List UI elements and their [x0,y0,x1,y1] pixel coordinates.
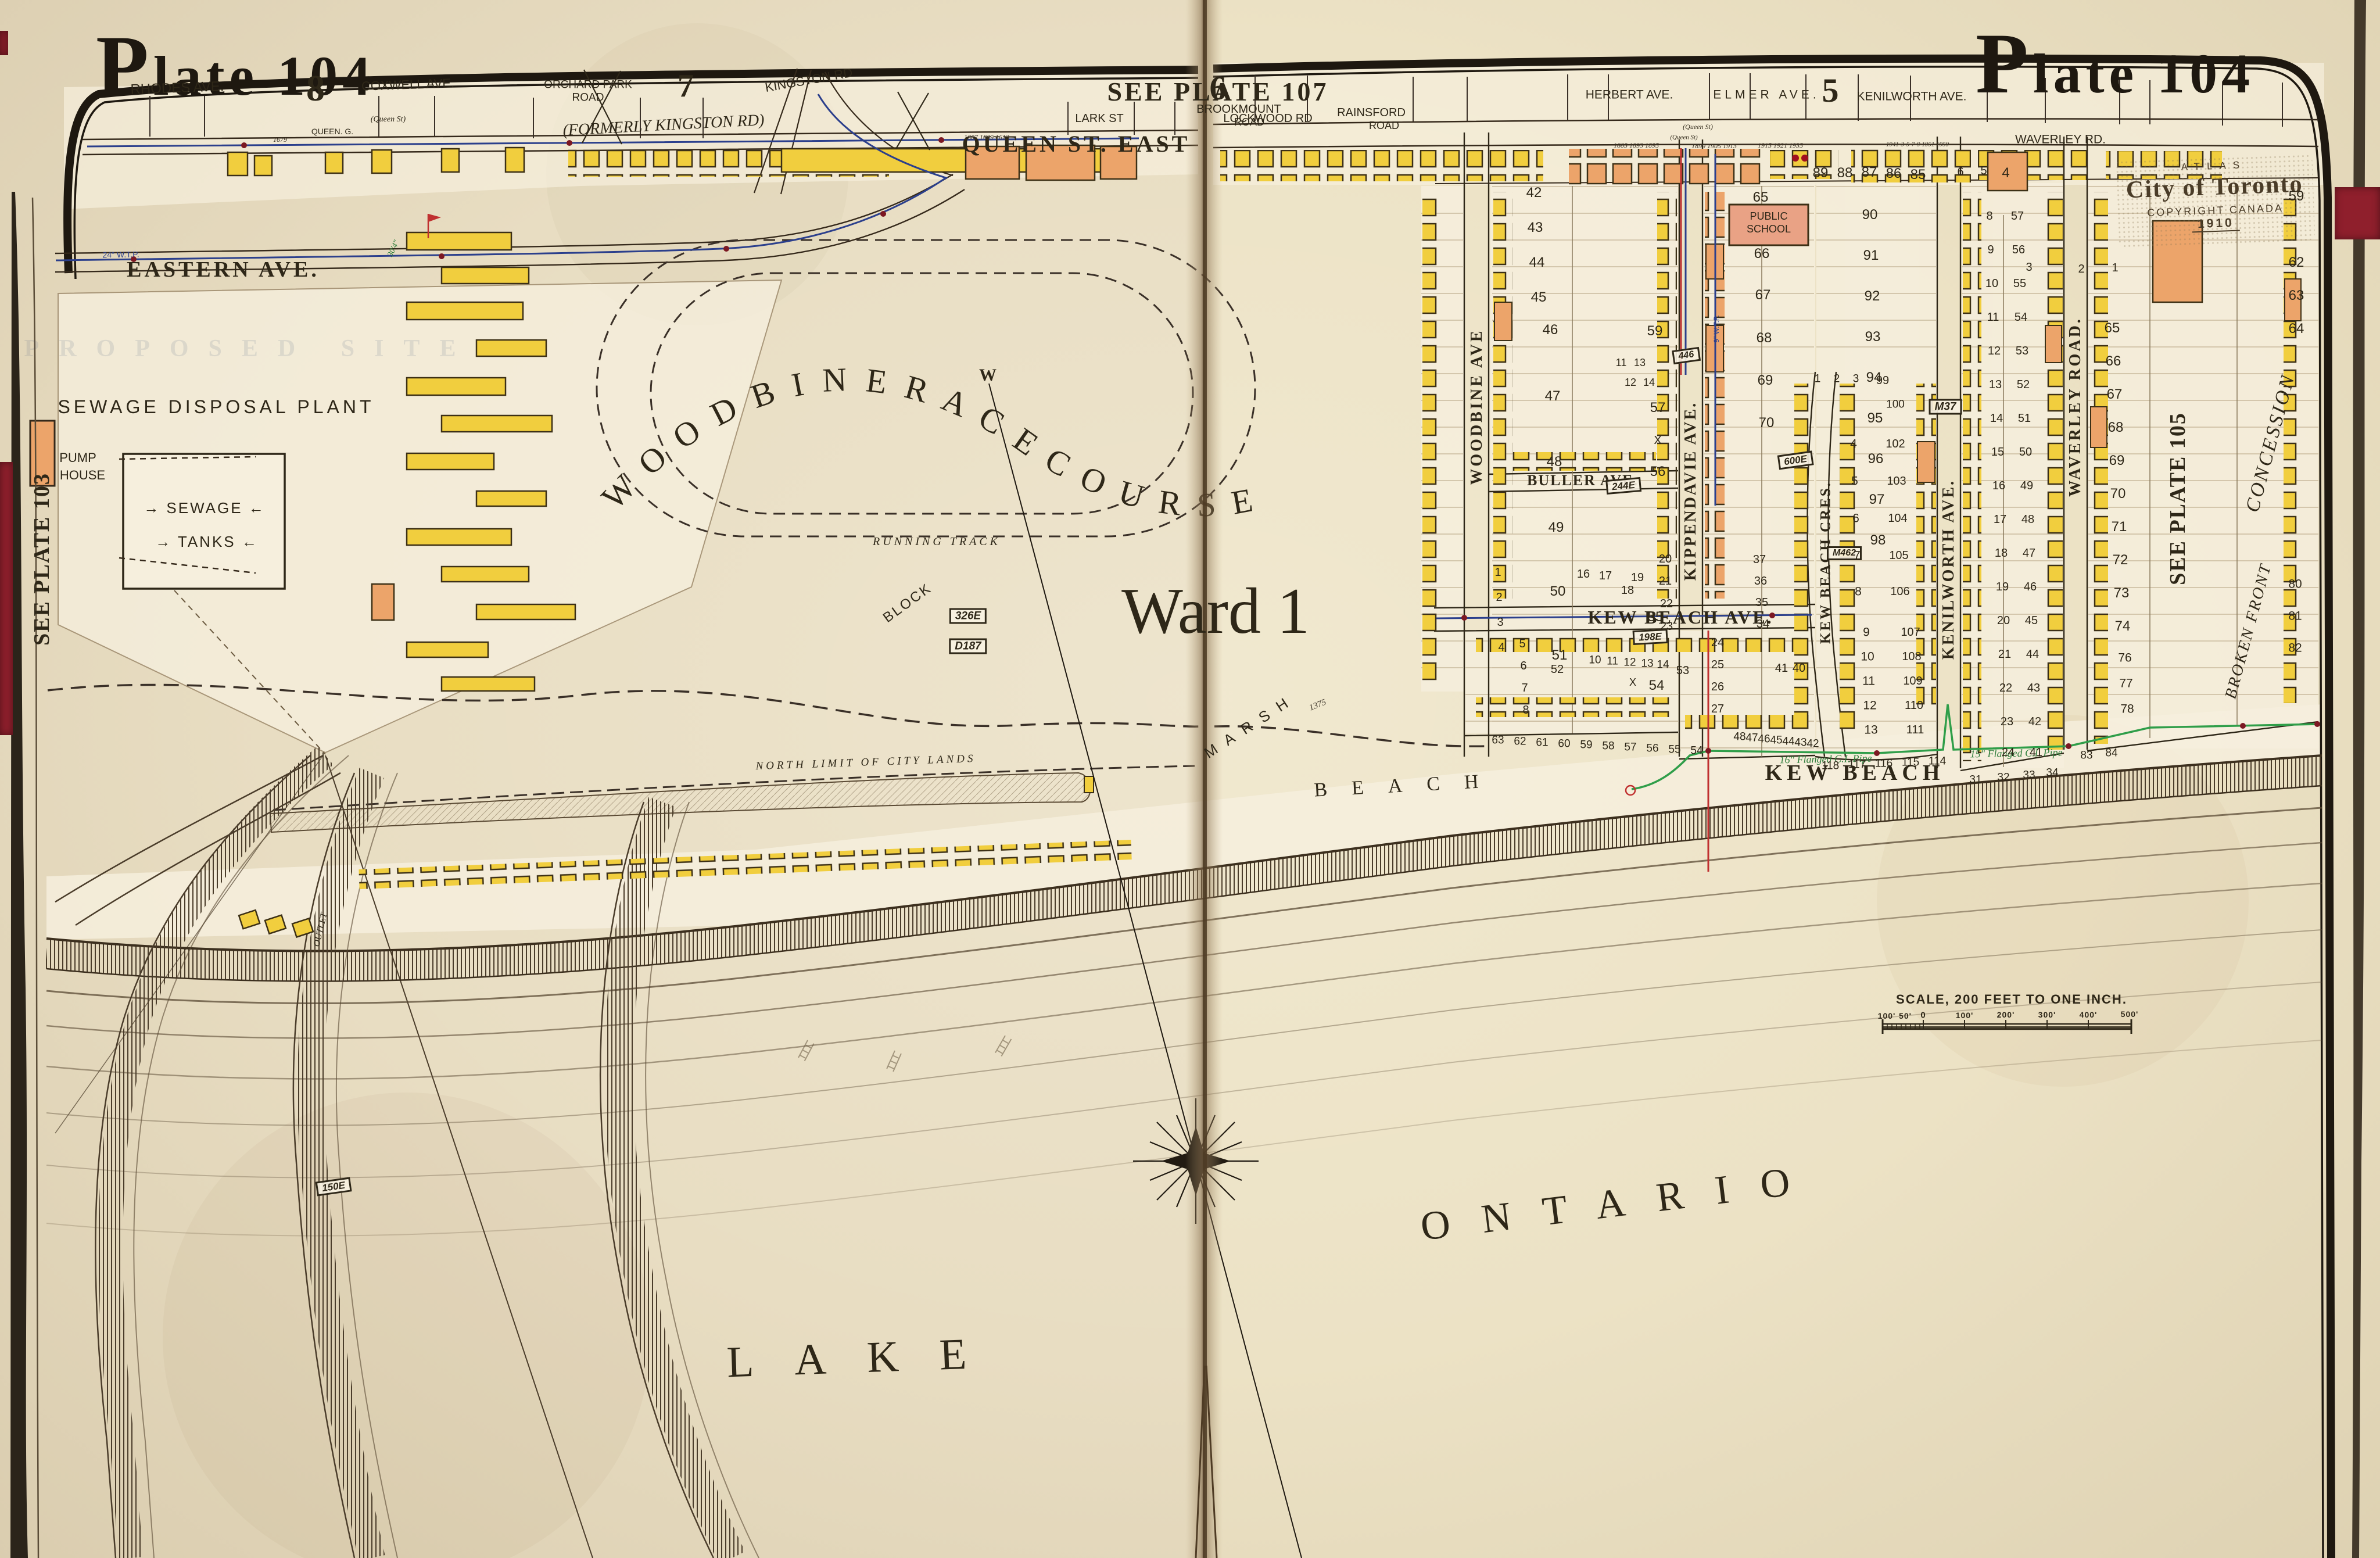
map-label: 71 [2112,520,2127,534]
map-label: 70 [1759,416,1775,430]
map-label: 30'4" [386,239,401,259]
map-label: PUMP [59,452,96,464]
map-label: 16 [1992,480,2005,492]
map-label: 50' [1899,1012,1912,1020]
map-label: BROKEN FRONT [2223,561,2274,701]
map-label: SEE PLATE 105 [2167,412,2189,585]
map-label: ROAD [1369,120,1399,131]
map-label: (Queen St) [1670,135,1697,141]
map-label: 6 [1852,513,1859,525]
map-label: 12 [1863,700,1876,712]
map-label: 8 [306,70,325,107]
map-label: 106 [1890,586,1909,597]
map-label: 84 [2105,748,2117,759]
map-label: 74 [2115,619,2131,633]
map-label: 96 [1868,452,1884,466]
map-label: OUTLET [313,912,329,948]
map-label: BROOKMOUNT [1196,103,1281,115]
map-label: 26 [1711,681,1724,693]
map-label: 1915 1921 1935 [1758,142,1803,149]
map-label: 33 [2023,770,2035,781]
map-label: 41 [2030,747,2042,758]
map-label: 34 [2046,768,2058,779]
map-label: 59 [2289,189,2304,203]
map-label: 52 [1551,664,1564,675]
map-label: 17 [1599,570,1612,582]
map-label: 50 [2019,446,2032,458]
map-label: 65 [2105,321,2120,335]
map-label: 6 [1520,660,1526,672]
map-label: 108 [1902,651,1921,662]
map-label: 47 [1745,733,1758,744]
map-label: 88 [1837,166,1853,180]
map-label: RAINSFORD [1337,107,1406,119]
map-label: 44 [1782,736,1794,747]
map-label: SCHOOL [1747,224,1791,234]
map-label: 47 [1545,389,1561,403]
map-label: 59 [1580,740,1592,751]
map-label: 46 [1758,734,1770,745]
map-label: 24" W.T.P. [102,250,139,259]
map-label: 50 [1550,585,1566,599]
map-label: 114 [1929,756,1946,767]
map-label: 5 [1980,165,1987,177]
map-label: 20 [1997,615,2010,626]
map-label: 57 [2011,210,2024,222]
map-label: 68 [1757,331,1772,345]
map-label: 67 [1755,288,1771,302]
map-label: 95 [1868,411,1883,425]
map-label: 23 [1660,621,1673,632]
map-label: KIPPENDAVIE AVE. [1683,402,1699,581]
map-label: RUNNING TRACK [873,536,1001,547]
map-label: 13 [1641,658,1653,669]
map-label: 49 [2020,480,2033,492]
map-label: CONCESSION [2243,371,2299,514]
map-label: 31 [1969,775,1981,786]
map-label: X [1629,677,1636,687]
map-label: NORTH LIMIT OF CITY LANDS [755,753,976,772]
map-label: 59 [1647,324,1663,338]
map-label: 21 [1998,649,2011,660]
map-label: 9 [1987,244,1994,256]
map-label: 4 [2002,166,2009,180]
map-label: 21 [1659,575,1672,587]
map-label: 53 [2016,345,2028,357]
map-label: 46 [1543,323,1558,337]
map-label: 1 [1815,374,1821,385]
map-label: 93 [1865,330,1881,344]
map-label: 10 [1985,278,1998,289]
map-label: 24 [2002,747,2015,758]
map-label: 118 [1822,761,1839,772]
map-label: HERBERT AVE. [1586,89,1673,101]
map-label: 32 [1997,772,2009,783]
map-label: 42 [1526,186,1542,200]
map-label: 22 [1660,598,1673,610]
map-label: 40 [1793,662,1805,674]
map-label: W [979,367,997,384]
map-label: KENILWORTH AVE. [1941,479,1957,660]
map-label: 92 [1865,289,1880,303]
map-label: (Queen St) [1683,123,1713,130]
map-label: 10 [1589,655,1601,666]
map-label: 89 [1813,166,1829,180]
map-label: 65 [1753,191,1769,205]
map-label: 14 [1643,377,1655,388]
map-label: ROAD [1234,117,1264,127]
map-label: 19 [1996,581,2009,593]
map-label: LARK ST [1075,113,1123,124]
map-label: ELMER AVE. [1713,89,1819,101]
map-label: 11 [1987,311,1999,323]
map-label: 82 [2288,642,2302,654]
map-label: 45 [1770,735,1782,746]
map-label: 60 [1558,739,1570,750]
map-label: 45 [1531,291,1547,305]
map-label: 5 [1851,475,1858,488]
map-label: ROAD [572,92,604,103]
map-label: 56 [2012,244,2025,256]
map-label: 81 [2288,610,2302,622]
map-label: 55 [1668,744,1680,755]
map-label: 4 [1850,438,1857,450]
map-label: BEACH [1314,771,1504,801]
map-label: 63 [2289,289,2304,303]
map-label: 3 [1853,374,1859,385]
map-label: M37 [1929,399,1962,415]
map-label: 1 [1494,567,1501,578]
map-label: 56 [1646,743,1658,754]
map-label: 15" Flanged C.I. Pipe [1970,747,2062,760]
map-label: RHODES AVE. [130,80,224,97]
map-label: 1679 [273,136,287,143]
map-label: 103 [1887,475,1906,487]
map-label: 62 [1514,736,1526,747]
map-label: 20 [1659,553,1672,565]
map-label: 105 [1889,550,1908,561]
map-label: 48 [2021,514,2034,525]
map-label: 54 [1649,679,1665,693]
map-label: (FORMERLY KINGSTON RD) [562,112,765,139]
map-label: 115 [1902,757,1919,768]
map-label: 100 [1886,399,1905,410]
map-label: 76 [2118,652,2131,664]
map-label: 23 [2001,716,2013,728]
map-label: 58 [1602,741,1614,752]
map-label: KINGSTON RD [764,66,854,94]
map-label: 1899 1905 1913 [1691,142,1737,149]
map-label: 13 [1634,357,1646,368]
map-label: 9" W.T.P. [1713,315,1720,342]
map-label: 57 [1650,401,1666,415]
map-label: 99 [1876,375,1889,386]
map-label: 54 [1690,746,1702,757]
map-label: 13 [1989,379,2002,391]
map-label: KENILWORTH AVE. [1856,91,1966,103]
map-label: 300' [2038,1011,2056,1019]
map-label: ORCHARD PARK [544,80,632,91]
map-label: 100' [1878,1012,1896,1020]
map-label: COXWELL AVE. [361,77,455,93]
map-label: 51 [1552,649,1568,662]
map-label: 18 [1621,585,1634,596]
map-label: 52 [2017,379,2030,391]
map-label: MARSH [1202,690,1299,761]
map-label: 1 [2112,262,2118,274]
map-label: 46 [2024,581,2037,593]
map-label: 6 [1210,71,1227,105]
map-label: 600E [1777,450,1814,470]
map-label: 25 [1711,659,1724,671]
map-label: (Queen St) [371,116,406,124]
map-label: 3 [2026,262,2032,273]
map-label: 0 [1920,1011,1926,1020]
map-label: 66 [2106,354,2121,368]
map-label: 37 [1753,554,1766,565]
map-label: 64 [2289,322,2304,336]
map-label: 13 [1864,724,1877,736]
map-label: 10 [1861,651,1874,663]
map-label: 44 [2026,649,2039,660]
map-label: 9 [1863,626,1870,639]
map-label: 110 [1905,700,1923,711]
map-label: 55 [2013,278,2026,289]
map-label: 446 [1672,347,1701,364]
map-label: 400' [2080,1011,2098,1019]
map-label: 43 [1528,221,1543,235]
map-label: 1375 [1308,698,1327,712]
map-label: 41 [1775,662,1788,674]
map-label: HOUSE [60,469,105,482]
map-label: 200' [1997,1011,2015,1019]
map-label: 83 [2080,750,2092,761]
map-label: 8 [1522,704,1529,716]
map-label: 14 [1990,413,2003,424]
map-label: 326E [949,608,987,624]
map-label: 24 [1711,637,1724,649]
map-label: WAVERLEY ROAD. [2067,317,2084,497]
map-label: 100' [1956,1011,1974,1019]
map-label: 62 [2289,256,2304,270]
map-label: 34 [1757,618,1769,630]
map-label: 244E [1605,477,1641,495]
map-label: → SEWAGE ← [144,500,266,515]
map-label: 22 [1999,682,2012,694]
map-label: 44 [1529,256,1545,270]
map-label: X [1654,435,1661,446]
map-label: 107 [1901,626,1920,638]
map-label: 2 [1834,374,1840,385]
map-label: 51 [2018,413,2031,424]
map-label: 1607 1609 1613 [964,134,1009,141]
map-label: 45 [2025,615,2038,626]
map-label: BLOCK [881,581,934,625]
map-label: 3 [1497,617,1503,628]
map-labels: RHODES AVE.8COXWELL AVE.ORCHARD PARKROAD… [0,0,2380,1558]
map-label: 69 [2109,454,2125,468]
map-label: 86 [1886,167,1902,181]
map-label: 68 [2108,421,2124,435]
map-label: 54 [2015,311,2027,323]
map-label: 53 [1676,665,1689,676]
map-label: 12 [1623,657,1636,668]
atlas-map-page: W O O D B I N E R A C E C O U R S E [0,0,2380,1558]
map-label: 11 [1862,675,1875,687]
map-label: 8 [1855,586,1862,598]
map-label: 1885 1893 1895 [1614,142,1659,149]
map-label: 116 [1875,758,1892,769]
map-label: 27 [1711,703,1724,715]
map-label: 16 [1577,568,1590,580]
map-label: 1941-3-5-7-9 1951 1959 [1886,142,1949,148]
map-label: KEW BEACH AVE. [1587,608,1773,626]
map-label: 87 [1862,166,1877,180]
map-label: 7 [1854,550,1861,562]
map-label: 43 [2027,682,2040,694]
map-label: 109 [1903,675,1922,687]
map-label: 150E [316,1177,352,1196]
map-label: 69 [1758,374,1773,388]
map-label: WAVERLEY RD. [2015,134,2106,146]
map-label: 70 [2110,487,2126,501]
map-label: EASTERN AVE. [127,259,320,281]
map-label: 63 [1492,735,1504,746]
map-label: SEE PLATE 103 [31,472,53,646]
map-label: Ward 1 [1121,579,1310,644]
map-label: 104 [1888,513,1907,524]
map-label: 11 [1616,357,1627,368]
map-label: 19 [1631,572,1644,583]
map-label: 66 [1754,247,1770,261]
map-label: 15 [1991,446,2004,458]
map-label: 97 [1869,493,1885,507]
map-label: 56 [1650,465,1666,479]
map-label: → TANKS ← [155,534,259,549]
map-label: PUBLIC [1750,211,1787,221]
map-label: 18 [1995,547,2008,559]
map-label: 73 [2114,586,2130,600]
map-label: 67 [2107,388,2123,402]
map-label: 12 [1625,377,1636,388]
map-label: 35 [1755,597,1768,608]
map-label: 2 [2078,263,2084,275]
map-label: 43 [1794,737,1806,748]
map-label: 2 [1496,592,1502,603]
map-label: 85 [1911,168,1926,182]
map-label: WOODBINE AVE [1469,328,1485,485]
map-label: 17 [1994,514,2006,525]
map-label: 14 [1657,660,1669,671]
map-label: 500' [2121,1010,2139,1018]
map-label: 72 [2113,553,2128,567]
map-label: 5 [1519,638,1525,650]
map-label: 8 [1986,210,1992,222]
map-label: 36 [1754,575,1767,587]
map-label: 42 [2028,716,2041,728]
map-label: 77 [2119,678,2132,690]
map-label: 48 [1733,732,1745,743]
map-label: QUEEN. G. [311,127,353,135]
map-label: 7 [1521,682,1528,694]
map-label: 49 [1549,521,1564,535]
map-label: 6 [1957,166,1963,178]
map-label: PROPOSED SITE [24,336,476,361]
map-label: 48 [1547,455,1562,469]
map-label: 98 [1870,533,1886,547]
map-label: 5 [1822,74,1839,108]
map-label: ONTARIO [1418,1158,1824,1248]
map-label: 90 [1862,208,1878,222]
map-label: 61 [1536,737,1548,748]
map-label: 42 [1806,739,1819,750]
map-label: 102 [1886,438,1905,450]
map-label: 57 [1624,742,1636,753]
map-label: 91 [1863,249,1879,263]
map-label: 7 [678,70,694,102]
map-label: 111 [1906,724,1924,736]
map-label: 12 [1988,345,2001,357]
map-label: SEWAGE DISPOSAL PLANT [58,397,374,416]
map-label: 11 [1607,656,1618,667]
map-label: 47 [2023,547,2035,559]
map-label: KEW BEACH CRES. [1819,481,1833,644]
map-label: 4 [1498,642,1504,653]
map-label: LAKE [726,1331,1008,1385]
map-label: 78 [2120,703,2134,715]
map-label: 80 [2288,578,2302,590]
map-label: SCALE, 200 FEET TO ONE INCH. [1896,993,2127,1006]
map-label: 117 [1848,760,1866,771]
map-label: D187 [949,639,987,654]
